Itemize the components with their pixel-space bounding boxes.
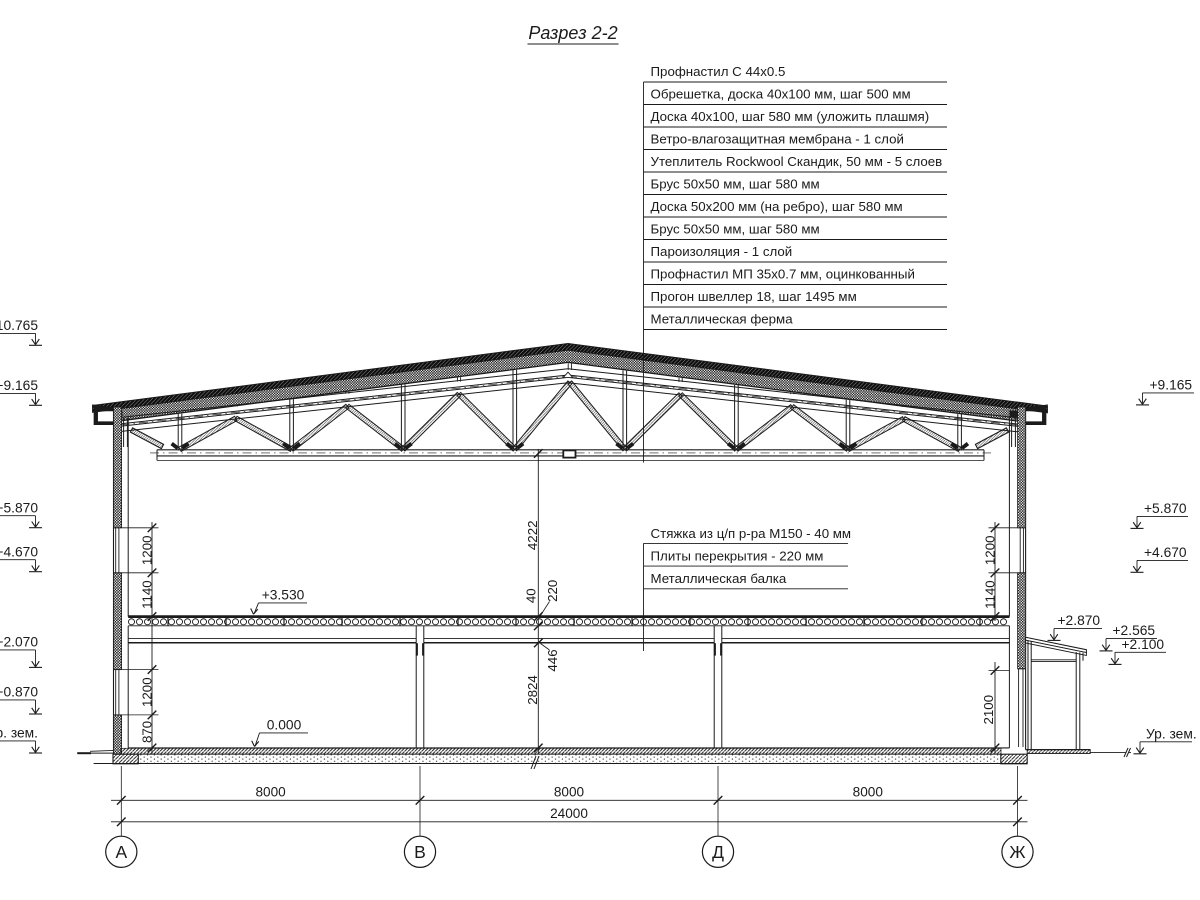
svg-text:Разрез 2-2: Разрез 2-2 [528,23,617,43]
svg-text:Металлическая балка: Металлическая балка [651,571,787,586]
svg-text:220: 220 [545,580,560,602]
svg-text:+3.530: +3.530 [262,588,305,603]
svg-text:+5.870: +5.870 [0,500,38,515]
svg-text:4222: 4222 [525,521,540,551]
svg-text:2824: 2824 [525,675,540,705]
svg-text:+4.670: +4.670 [1144,545,1187,560]
svg-text:Д: Д [712,842,724,862]
svg-text:Брус 50х50 мм, шаг 580 мм: Брус 50х50 мм, шаг 580 мм [651,222,820,237]
svg-text:1140: 1140 [139,580,154,609]
svg-text:+0.870: +0.870 [0,685,38,700]
svg-text:8000: 8000 [255,785,286,800]
svg-text:870: 870 [139,721,154,743]
svg-text:Ветро-влагозащитная мембрана -: Ветро-влагозащитная мембрана - 1 слой [651,132,904,147]
svg-text:8000: 8000 [554,785,585,800]
svg-text:+2.870: +2.870 [1058,613,1101,628]
svg-text:А: А [115,842,127,862]
svg-text:Стяжка из ц/п р-ра М150 - 40 м: Стяжка из ц/п р-ра М150 - 40 мм [651,526,852,541]
svg-text:Плиты перекрытия - 220 мм: Плиты перекрытия - 220 мм [651,549,824,564]
svg-text:Обрешетка, доска 40х100 мм, ша: Обрешетка, доска 40х100 мм, шаг 500 мм [651,87,911,102]
svg-text:0.000: 0.000 [267,718,302,733]
svg-text:+9.165: +9.165 [1150,378,1193,393]
svg-text:+2.070: +2.070 [0,635,38,650]
svg-text:Брус 50х50 мм, шаг 580 мм: Брус 50х50 мм, шаг 580 мм [651,177,820,192]
svg-text:Металлическая ферма: Металлическая ферма [651,312,794,327]
svg-text:1140: 1140 [982,580,997,609]
svg-text:+5.870: +5.870 [1144,501,1187,516]
svg-text:+9.165: +9.165 [0,378,38,393]
svg-text:1200: 1200 [982,536,997,566]
svg-text:Ур. зем.: Ур. зем. [0,726,38,741]
svg-text:Ж: Ж [1009,842,1025,862]
svg-text:Пароизоляция - 1 слой: Пароизоляция - 1 слой [651,244,793,259]
svg-text:+4.670: +4.670 [0,544,38,559]
svg-text:+2.100: +2.100 [1122,637,1165,652]
svg-text:+10.765: +10.765 [0,318,38,333]
svg-text:1200: 1200 [139,677,154,707]
svg-text:Доска 40х100, шаг 580 мм (улож: Доска 40х100, шаг 580 мм (уложить плашмя… [651,109,930,124]
svg-text:Профнастил МП 35х0.7 мм, оцинк: Профнастил МП 35х0.7 мм, оцинкованный [651,267,915,282]
svg-text:Прогон швеллер 18, шаг 1495 мм: Прогон швеллер 18, шаг 1495 мм [651,289,857,304]
svg-text:В: В [414,842,426,862]
svg-text:446: 446 [545,649,560,671]
svg-text:Доска 50х200 мм (на ребро), ша: Доска 50х200 мм (на ребро), шаг 580 мм [651,199,903,214]
svg-text:Ур. зем.: Ур. зем. [1146,726,1197,741]
svg-text:1200: 1200 [139,536,154,566]
svg-text:40: 40 [523,588,538,603]
svg-text:24000: 24000 [550,806,588,821]
svg-text:Утеплитель Rockwool Скандик, 5: Утеплитель Rockwool Скандик, 50 мм - 5 с… [651,154,943,169]
svg-text:2100: 2100 [981,695,996,725]
svg-text:Профнастил С 44х0.5: Профнастил С 44х0.5 [651,64,786,79]
svg-text:8000: 8000 [853,785,884,800]
